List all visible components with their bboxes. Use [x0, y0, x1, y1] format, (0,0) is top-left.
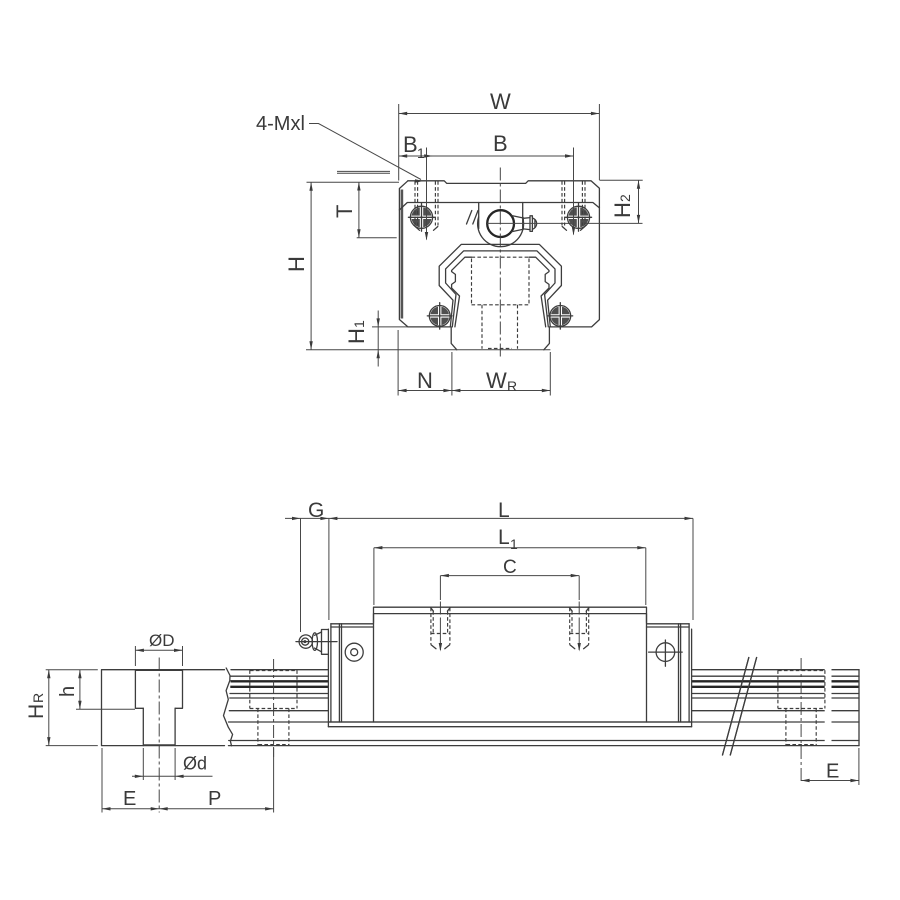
- svg-text:H: H: [610, 202, 635, 218]
- svg-text:L: L: [498, 499, 510, 522]
- svg-text:ØD: ØD: [149, 631, 175, 650]
- svg-text:H: H: [344, 328, 369, 344]
- svg-text:E: E: [826, 761, 839, 783]
- svg-text:E: E: [123, 788, 136, 810]
- svg-text:1: 1: [417, 145, 425, 161]
- svg-text:R: R: [30, 693, 46, 703]
- svg-text:G: G: [308, 499, 324, 522]
- svg-text:Ød: Ød: [183, 754, 207, 774]
- svg-text:T: T: [332, 205, 357, 218]
- svg-text:C: C: [503, 557, 517, 578]
- svg-text:H: H: [284, 256, 309, 272]
- svg-text:2: 2: [617, 194, 633, 202]
- svg-text:W: W: [490, 89, 511, 114]
- svg-text:H: H: [25, 704, 48, 719]
- svg-text:1: 1: [510, 536, 518, 552]
- svg-text:N: N: [417, 368, 433, 393]
- svg-text:P: P: [208, 788, 221, 810]
- svg-text:L: L: [498, 526, 510, 549]
- svg-text:B: B: [493, 131, 508, 156]
- svg-text:R: R: [507, 378, 517, 394]
- svg-text:1: 1: [351, 320, 367, 328]
- svg-text:4-Mxl: 4-Mxl: [256, 113, 305, 135]
- svg-text:W: W: [486, 368, 507, 393]
- svg-text:B: B: [403, 132, 418, 157]
- svg-text:h: h: [57, 686, 79, 697]
